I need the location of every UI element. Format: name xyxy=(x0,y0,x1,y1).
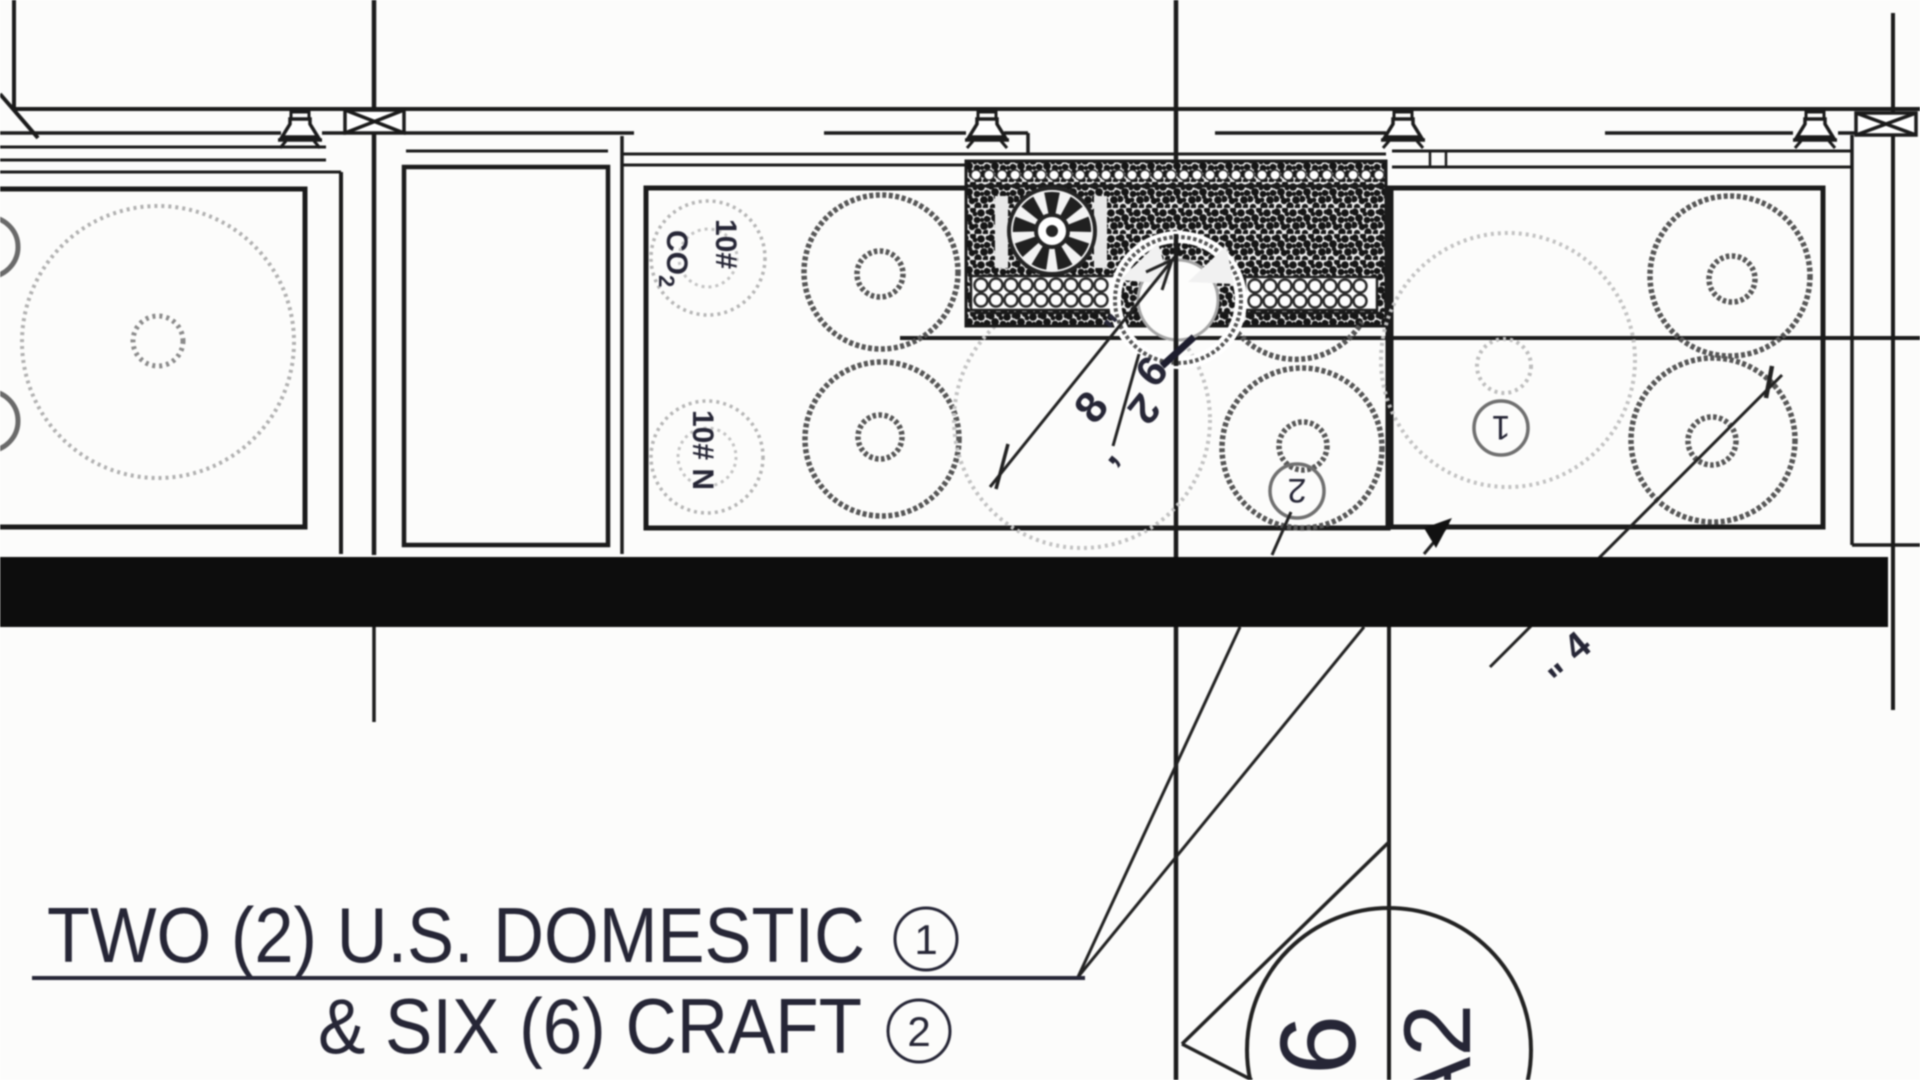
svg-text:A2: A2 xyxy=(1385,1004,1491,1080)
svg-text:10#: 10# xyxy=(709,219,742,269)
svg-text:6: 6 xyxy=(1257,1015,1378,1075)
svg-text:1: 1 xyxy=(914,916,937,963)
svg-text:1: 1 xyxy=(1492,408,1511,446)
svg-text:TWO (2) U.S. DOMESTIC: TWO (2) U.S. DOMESTIC xyxy=(47,891,865,979)
svg-text:& SIX (6) CRAFT: & SIX (6) CRAFT xyxy=(318,982,862,1070)
svg-text:2: 2 xyxy=(907,1008,930,1055)
svg-text:2: 2 xyxy=(1288,471,1307,509)
svg-text:10# N: 10# N xyxy=(686,410,719,490)
